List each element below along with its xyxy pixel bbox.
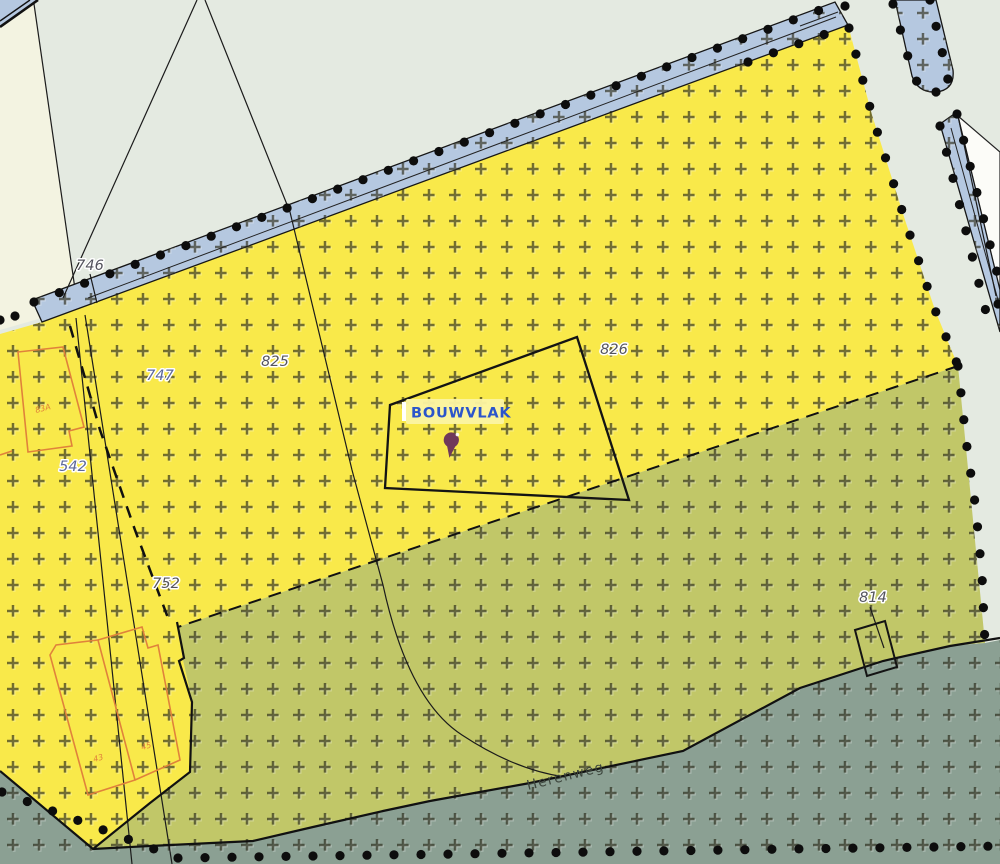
boundary-dot — [794, 39, 803, 48]
boundary-dot — [769, 48, 778, 57]
boundary-dot — [980, 630, 989, 639]
boundary-dot — [632, 847, 641, 856]
boundary-dot — [956, 388, 965, 397]
parcel-label-747: 747 — [146, 368, 174, 384]
boundary-dot — [536, 109, 545, 118]
boundary-dot — [952, 109, 961, 118]
boundary-dot — [99, 825, 108, 834]
boundary-dot — [105, 269, 114, 278]
boundary-dot — [820, 30, 829, 39]
boundary-dot — [73, 816, 82, 825]
parcel-label-826: 826 — [600, 342, 628, 358]
boundary-dot — [905, 231, 914, 240]
boundary-dot — [889, 179, 898, 188]
boundary-dot — [935, 121, 944, 130]
boundary-dot — [497, 849, 506, 858]
boundary-dot — [254, 852, 263, 861]
zoning-map-viewport[interactable]: 746 747 825 826 542 752 814 83A 43 45 He… — [0, 0, 1000, 864]
boundary-dot — [959, 136, 968, 145]
boundary-dot — [29, 297, 38, 306]
boundary-dot — [932, 22, 941, 31]
boundary-dot — [979, 214, 988, 223]
boundary-dot — [281, 852, 290, 861]
boundary-dot — [970, 495, 979, 504]
boundary-dot — [974, 279, 983, 288]
boundary-dot — [912, 77, 921, 86]
building-area-callout-tick — [402, 402, 406, 421]
boundary-dot — [972, 188, 981, 197]
boundary-dot — [131, 260, 140, 269]
boundary-dot — [637, 72, 646, 81]
boundary-dot — [979, 603, 988, 612]
boundary-dot — [948, 174, 957, 183]
parcel-label-814: 814 — [859, 590, 887, 606]
boundary-dot — [840, 1, 849, 10]
boundary-dot — [938, 48, 947, 57]
boundary-dot — [851, 50, 860, 59]
parcel-label-825: 825 — [261, 354, 289, 370]
boundary-dot — [384, 166, 393, 175]
boundary-dot — [844, 23, 853, 32]
boundary-dot — [713, 846, 722, 855]
boundary-dot — [485, 128, 494, 137]
boundary-dot — [470, 849, 479, 858]
boundary-dot — [232, 222, 241, 231]
boundary-dot — [308, 194, 317, 203]
boundary-dot — [789, 15, 798, 24]
boundary-dot — [605, 847, 614, 856]
boundary-dot — [848, 844, 857, 853]
boundary-dot — [961, 226, 970, 235]
boundary-dot — [981, 305, 990, 314]
boundary-dot — [612, 81, 621, 90]
boundary-dot — [23, 797, 32, 806]
boundary-dot — [814, 6, 823, 15]
boundary-dot — [740, 845, 749, 854]
parcel-label-542: 542 — [59, 459, 87, 475]
boundary-dot — [333, 185, 342, 194]
boundary-dot — [335, 851, 344, 860]
boundary-dot — [858, 76, 867, 85]
boundary-dot — [551, 848, 560, 857]
boundary-dot — [207, 232, 216, 241]
boundary-dot — [959, 415, 968, 424]
boundary-dot — [929, 842, 938, 851]
boundary-dot — [227, 853, 236, 862]
boundary-dot — [956, 842, 965, 851]
boundary-dot — [416, 850, 425, 859]
boundary-dot — [953, 361, 962, 370]
boundary-dot — [662, 62, 671, 71]
boundary-dot — [873, 128, 882, 137]
boundary-dot — [923, 282, 932, 291]
boundary-dot — [943, 74, 952, 83]
boundary-dot — [738, 34, 747, 43]
boundary-dot — [881, 153, 890, 162]
building-area-callout[interactable]: BOUWVLAK — [402, 399, 511, 424]
parcel-label-746: 746 — [76, 258, 104, 274]
boundary-dot — [578, 848, 587, 857]
boundary-dot — [865, 102, 874, 111]
boundary-dot — [124, 835, 133, 844]
boundary-dot — [510, 119, 519, 128]
boundary-dot — [942, 148, 951, 157]
boundary-dot — [10, 311, 19, 320]
boundary-dot — [283, 203, 292, 212]
boundary-dot — [931, 307, 940, 316]
boundary-dot — [986, 240, 995, 249]
boundary-dot — [200, 853, 209, 862]
boundary-dot — [743, 57, 752, 66]
zoning-map-canvas[interactable]: 746 747 825 826 542 752 814 83A 43 45 He… — [0, 0, 1000, 864]
parcel-label-752: 752 — [152, 576, 180, 592]
boundary-dot — [897, 205, 906, 214]
boundary-dot — [903, 51, 912, 60]
boundary-dot — [362, 851, 371, 860]
boundary-dot — [659, 846, 668, 855]
boundary-dot — [941, 332, 950, 341]
boundary-dot — [955, 200, 964, 209]
boundary-dot — [524, 848, 533, 857]
boundary-dot — [434, 147, 443, 156]
boundary-dot — [409, 156, 418, 165]
boundary-dot — [914, 256, 923, 265]
boundary-dot — [358, 175, 367, 184]
boundary-dot — [561, 100, 570, 109]
boundary-dot — [966, 162, 975, 171]
boundary-dot — [181, 241, 190, 250]
boundary-dot — [257, 213, 266, 222]
boundary-dot — [389, 850, 398, 859]
boundary-dot — [931, 87, 940, 96]
boundary-dot — [173, 853, 182, 862]
boundary-dot — [149, 844, 158, 853]
boundary-dot — [896, 25, 905, 34]
building-area-callout-text: BOUWVLAK — [411, 406, 511, 422]
boundary-dot — [983, 842, 992, 851]
boundary-dot — [975, 549, 984, 558]
boundary-dot — [968, 252, 977, 261]
boundary-dot — [973, 522, 982, 531]
boundary-dot — [48, 806, 57, 815]
boundary-dot — [156, 250, 165, 259]
boundary-dot — [443, 850, 452, 859]
boundary-dot — [686, 846, 695, 855]
boundary-dot — [902, 843, 911, 852]
boundary-dot — [308, 851, 317, 860]
boundary-dot — [586, 91, 595, 100]
boundary-dot — [687, 53, 696, 62]
boundary-dot — [767, 845, 776, 854]
boundary-dot — [460, 138, 469, 147]
boundary-dot — [763, 25, 772, 34]
boundary-dot — [966, 469, 975, 478]
boundary-dot — [821, 844, 830, 853]
boundary-dot — [978, 576, 987, 585]
boundary-dot — [80, 279, 89, 288]
boundary-dot — [962, 442, 971, 451]
boundary-dot — [794, 844, 803, 853]
boundary-dot — [713, 44, 722, 53]
boundary-dot — [55, 288, 64, 297]
boundary-dot — [875, 843, 884, 852]
